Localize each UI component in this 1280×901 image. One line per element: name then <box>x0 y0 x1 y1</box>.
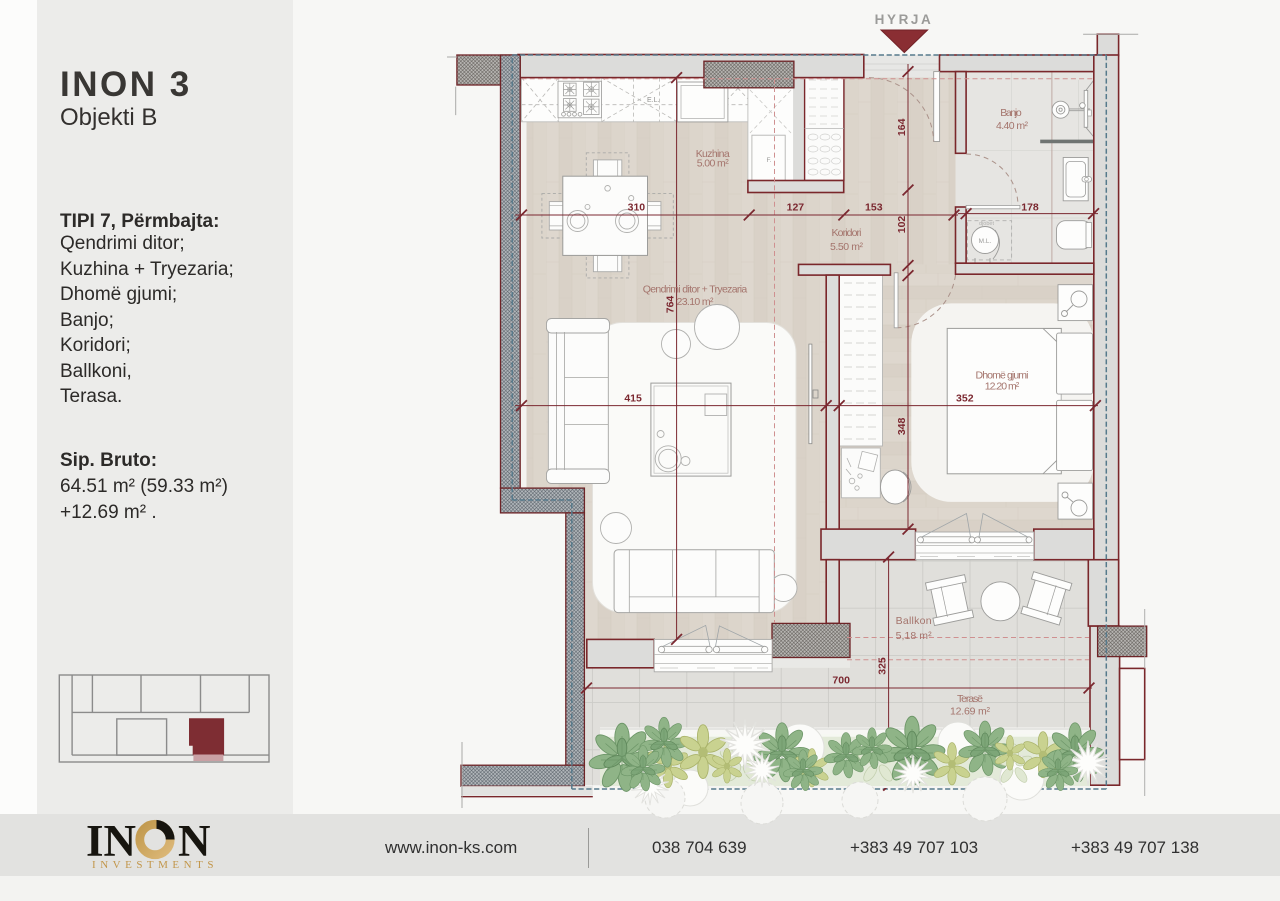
svg-text:5,18 m²: 5,18 m² <box>896 630 933 642</box>
svg-text:Qendrimi ditor + Tryezaria: Qendrimi ditor + Tryezaria <box>643 284 748 296</box>
svg-text:23.10 m²: 23.10 m² <box>677 296 715 308</box>
svg-text:764: 764 <box>665 296 677 314</box>
svg-text:164: 164 <box>896 118 908 136</box>
svg-text:Koridori: Koridori <box>832 227 862 239</box>
svg-text:4.40 m²: 4.40 m² <box>996 120 1029 132</box>
svg-text:102: 102 <box>896 216 908 234</box>
svg-text:E.L.: E.L. <box>647 97 660 104</box>
svg-text:12.69 m²: 12.69 m² <box>950 706 991 718</box>
svg-text:5.50 m²: 5.50 m² <box>830 241 864 253</box>
svg-text:Ballkon: Ballkon <box>896 615 932 627</box>
svg-text:Terasë: Terasë <box>957 693 983 705</box>
svg-text:5.00 m²: 5.00 m² <box>697 158 730 170</box>
svg-text:12.20 m²: 12.20 m² <box>985 380 1020 392</box>
svg-text:djobet: djobet <box>979 221 994 227</box>
svg-text:700: 700 <box>832 675 850 687</box>
svg-text:310: 310 <box>628 202 646 214</box>
svg-text:F.: F. <box>766 157 771 164</box>
svg-text:HYRJA: HYRJA <box>875 12 934 27</box>
svg-text:178: 178 <box>1021 202 1039 214</box>
svg-text:325: 325 <box>877 657 889 675</box>
svg-text:153: 153 <box>865 202 883 214</box>
svg-text:348: 348 <box>896 417 908 435</box>
svg-text:127: 127 <box>787 202 805 214</box>
svg-text:Banjo: Banjo <box>1000 107 1022 119</box>
svg-text:352: 352 <box>956 393 974 405</box>
svg-text:M.L.: M.L. <box>979 238 992 245</box>
svg-text:415: 415 <box>624 393 642 405</box>
